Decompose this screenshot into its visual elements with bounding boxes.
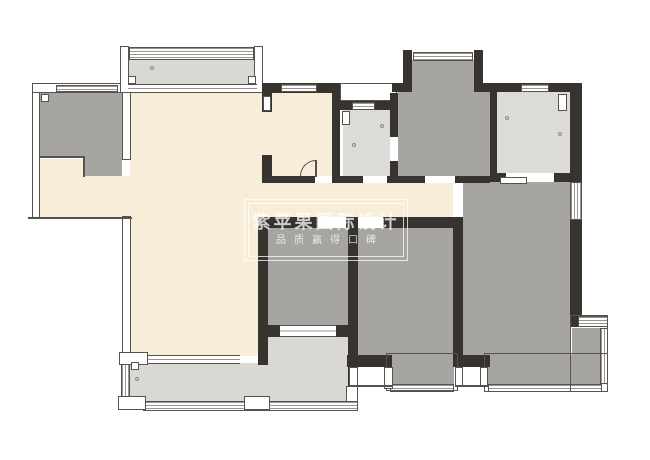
wall-kitchen-right xyxy=(570,92,582,173)
marker-dot-kitchen-a xyxy=(505,116,509,120)
line-study-notch-v xyxy=(83,156,85,177)
window-balcony-left xyxy=(121,364,130,398)
door-gap-storage xyxy=(363,176,387,183)
bathroom-niche-fill xyxy=(412,60,474,92)
bay-gap-line-a xyxy=(349,385,393,387)
line-entry-bottom xyxy=(28,217,132,219)
door-gap-master xyxy=(453,183,463,217)
sliding-door-living-balcony xyxy=(148,355,240,364)
balcony-pillar-bottom-left xyxy=(118,396,146,410)
balcony-corner-symbol xyxy=(131,362,139,370)
wall-hall-bottom-right xyxy=(383,217,463,228)
wall-master-right xyxy=(570,220,582,327)
window-study-top xyxy=(56,85,118,92)
line-study-notch-h xyxy=(40,156,85,158)
storage-door-symbol xyxy=(342,111,350,125)
bathroom-fill xyxy=(398,92,490,176)
window-master-right xyxy=(570,182,582,220)
wall-top-mid-stub xyxy=(392,83,403,92)
dining-room-fill xyxy=(262,93,332,176)
entry-fill-right xyxy=(85,176,130,217)
study-room-fill-lower xyxy=(85,157,122,176)
wall-hall-bottom-left xyxy=(262,217,318,228)
study-corner-symbol xyxy=(41,94,49,102)
dining-door-leaf-symbol xyxy=(263,96,271,111)
study-room-fill-upper xyxy=(40,93,122,157)
door-gap-hall-a xyxy=(318,217,346,228)
marker-dot-storage-b xyxy=(352,143,356,147)
bay-gap-pillar-a xyxy=(349,367,358,387)
north-balcony-corner-right xyxy=(248,76,256,84)
wall-hall-bottom-mid xyxy=(346,217,358,228)
bedroom-middle-fill xyxy=(358,228,453,355)
sliding-door-north-balcony xyxy=(128,84,257,93)
bay-gap-line-b xyxy=(455,385,488,387)
wall-bedroom-left-stub-b xyxy=(336,325,348,337)
wall-bathroom-right xyxy=(490,92,497,176)
wall-niche-right xyxy=(474,50,483,92)
kitchen-corner-symbol xyxy=(558,94,567,111)
south-balcony-fill-main xyxy=(130,363,348,403)
wall-storage-right-upper xyxy=(390,93,398,137)
bay-gap-pillar-d xyxy=(480,367,488,387)
storage-top-recess xyxy=(340,83,397,101)
wall-bedrooms-divider xyxy=(348,228,358,327)
window-niche-top xyxy=(413,52,473,61)
wall-bedroom-left-stub-a xyxy=(268,325,280,337)
wall-bedroom-left-west xyxy=(258,217,268,365)
frame-master-bay-side xyxy=(570,315,608,392)
wall-master-left xyxy=(453,217,463,367)
exterior-wall-left xyxy=(32,83,40,219)
bedroom-left-fill xyxy=(268,228,348,325)
door-gap-bathroom xyxy=(425,176,455,183)
kitchen-sliding-leaf xyxy=(500,177,527,184)
study-right-wall xyxy=(122,90,131,160)
master-bedroom-fill xyxy=(462,182,570,355)
exterior-wall-lower-left xyxy=(122,216,131,357)
marker-dot-kitchen-b xyxy=(558,132,562,136)
dining-door-leaf xyxy=(315,160,317,177)
sliding-door-bedroom-left xyxy=(280,325,336,337)
door-gap-dining xyxy=(315,176,332,183)
window-storage-top xyxy=(352,102,375,110)
wall-niche-left xyxy=(403,50,412,92)
north-balcony-fill xyxy=(128,59,257,85)
balcony-pillar-right xyxy=(346,386,358,402)
north-balcony-corner-left xyxy=(128,76,136,84)
wall-dining-right xyxy=(332,83,340,176)
storage-room-fill xyxy=(343,110,390,178)
bay-gap-pillar-c xyxy=(455,367,463,387)
marker-dot-south-balcony xyxy=(135,377,139,381)
living-room-fill xyxy=(130,93,262,356)
south-balcony-fill-upper xyxy=(268,336,348,364)
door-gap-hall-b xyxy=(358,217,383,228)
gap-storage-right xyxy=(390,137,398,161)
wall-dining-left-lower xyxy=(262,155,272,176)
window-dining-top xyxy=(281,84,317,92)
entry-fill-left xyxy=(40,159,85,217)
window-kitchen-top xyxy=(521,84,549,92)
hallway-fill xyxy=(262,183,462,217)
marker-dot-balcony xyxy=(150,66,154,70)
balcony-pillar-mid xyxy=(244,396,270,410)
frame-middle-bay xyxy=(386,353,458,391)
floor-plan: 紫苹果国际设计 品质赢得口碑 xyxy=(0,0,650,460)
window-north-balcony xyxy=(129,47,254,60)
marker-dot-storage-a xyxy=(380,124,384,128)
